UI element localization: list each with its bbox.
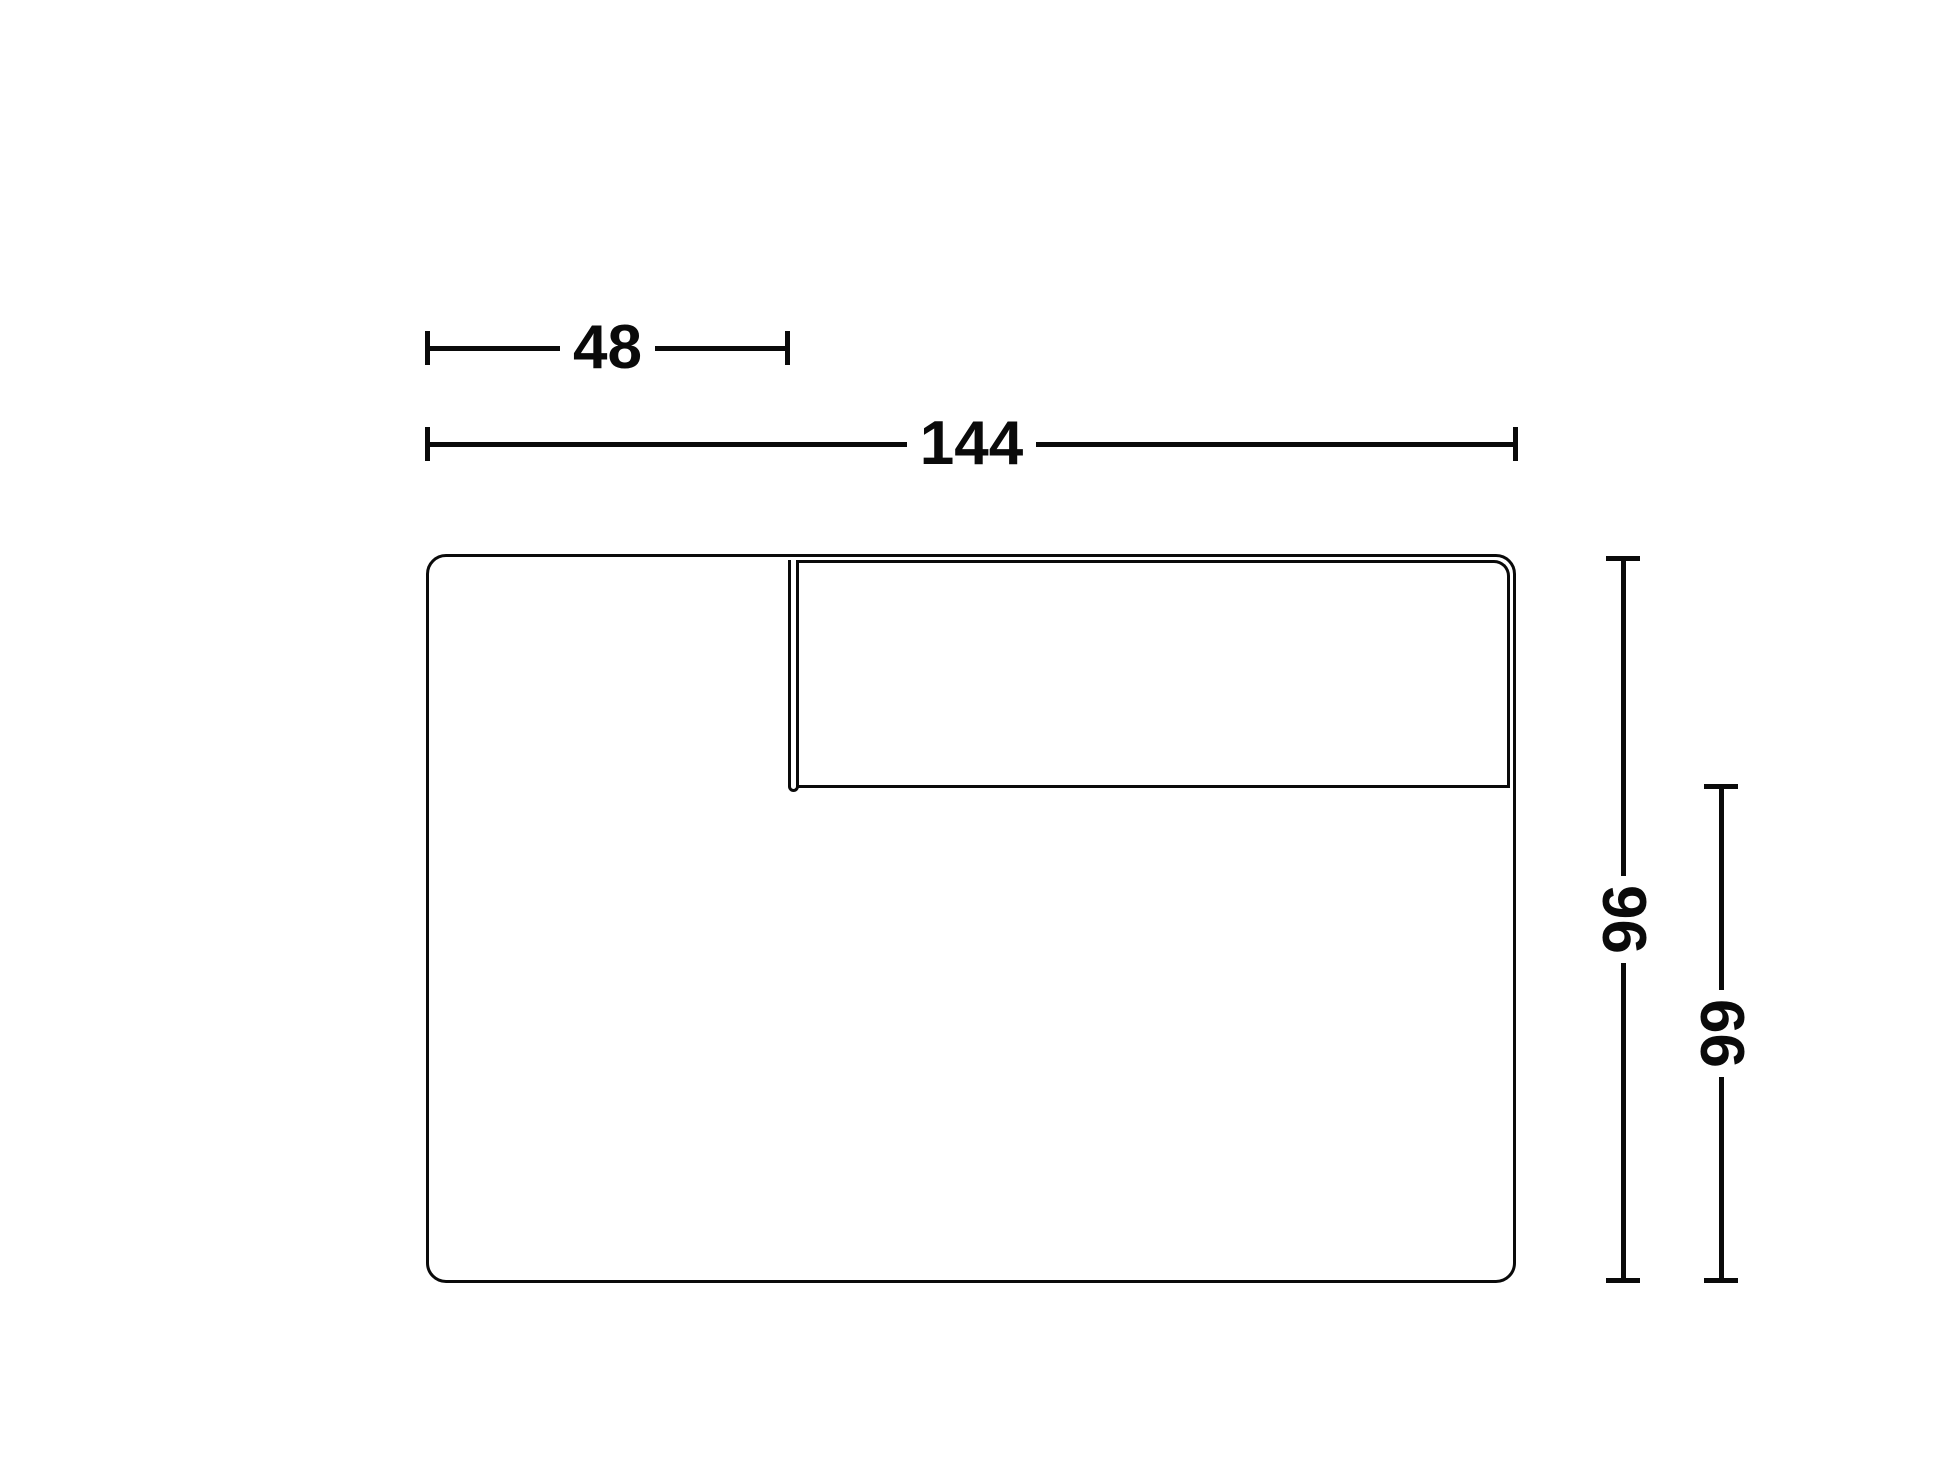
partial-width-dimension: 48	[425, 317, 790, 379]
dimension-line	[1621, 963, 1626, 1278]
dimension-line	[1036, 442, 1513, 447]
backrest-left-seam	[788, 560, 799, 792]
partial-width-value: 48	[573, 317, 642, 379]
total-width-value: 144	[920, 413, 1023, 475]
dimension-tick	[1704, 1278, 1738, 1283]
partial-height-dimension: 66	[1690, 784, 1752, 1283]
dimension-line	[1719, 789, 1724, 990]
dimension-tick	[785, 331, 790, 365]
total-width-dimension: 144	[425, 413, 1518, 475]
dimension-tick	[1606, 1278, 1640, 1283]
dimension-tick	[1513, 427, 1518, 461]
dimension-drawing: 48 144 96 66	[0, 0, 1946, 1464]
backrest-panel-outline	[797, 560, 1510, 788]
partial-height-value: 66	[1690, 999, 1752, 1068]
total-height-dimension: 96	[1592, 556, 1654, 1283]
dimension-line	[1719, 1077, 1724, 1278]
dimension-line	[430, 442, 907, 447]
dimension-line	[430, 346, 560, 351]
dimension-line	[655, 346, 785, 351]
total-height-value: 96	[1592, 885, 1654, 954]
dimension-line	[1621, 561, 1626, 876]
